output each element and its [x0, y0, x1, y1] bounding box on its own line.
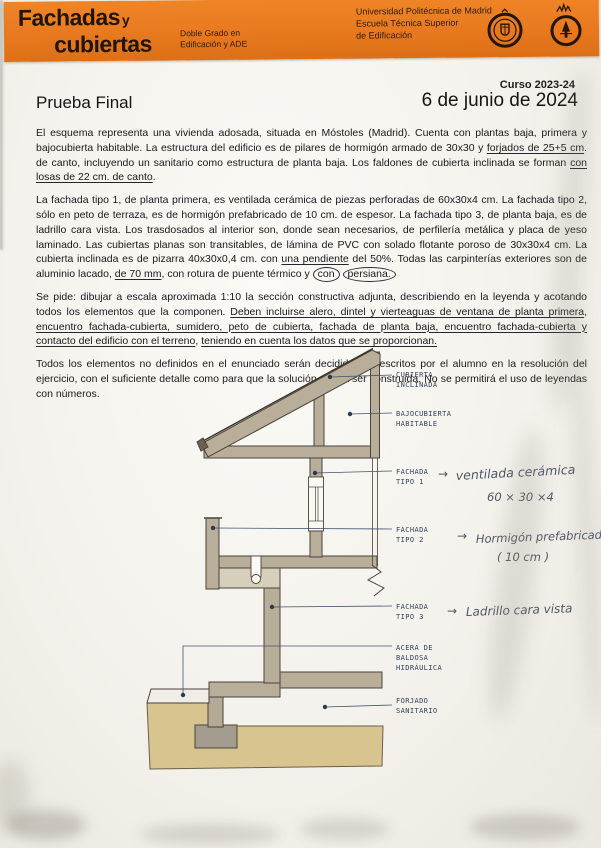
paragraph-building-description: El esquema representa una vivienda adosa… [36, 126, 587, 185]
ground-fill [147, 703, 383, 769]
title-word-1: Fachadas [18, 4, 120, 31]
label-acera-2: BALDOSA [396, 654, 429, 662]
scan-shadow-blot [300, 818, 390, 840]
paragraph-requirements: Se pide: dibujar a escala aproximada 1:1… [36, 290, 587, 349]
label-acera-3: HIDRÁULICA [396, 663, 443, 672]
text-run: con [313, 267, 340, 282]
label-fachada-tipo1-2: TIPO 1 [396, 478, 424, 486]
foundation-footing [195, 725, 237, 748]
annotation-hormigon-prefabricado: Hormigón prefabricado [476, 527, 601, 546]
text-run: persiana. [343, 267, 396, 282]
exam-title: Prueba Final [36, 93, 132, 113]
label-fachada-tipo2-2: TIPO 2 [396, 536, 424, 544]
window-frame [309, 477, 324, 531]
text-run: Deben incluirse alero, dintel y vierteag… [230, 306, 584, 318]
scan-shadow-blot [6, 810, 86, 840]
course-title-line1: Fachadasy [18, 4, 188, 33]
label-bajocubierta-2: HABITABLE [396, 420, 438, 428]
construction-section-drawing: CUBIERTA INCLINADA BAJOCUBIERTA HABITABL… [0, 348, 601, 808]
annotation-ladrillo-cara-vista: Ladrillo cara vista [466, 601, 573, 619]
text-run: una pendiente [281, 253, 348, 265]
upm-seal-icon [489, 9, 521, 46]
first-floor-slab [204, 446, 378, 458]
foundation-stem [208, 697, 223, 727]
text-run: de 70 mm [115, 268, 162, 280]
text-run: , [584, 306, 587, 318]
label-fachada-tipo1: FACHADA [396, 468, 429, 476]
text-run: teniendo en cuenta los datos que se prop… [201, 335, 437, 347]
text-run: . [153, 171, 156, 183]
university-line1: Universidad Politécnica de Madrid [356, 4, 492, 17]
program-line2: Edificación y ADE [180, 39, 247, 51]
inclined-roof-slab [201, 350, 380, 457]
scan-shadow-blot [470, 814, 580, 840]
label-cubierta-inclinada: CUBIERTA [396, 371, 433, 379]
label-cubierta-inclinada-2: INCLINADA [396, 381, 438, 389]
arrow-fachada1: → [438, 467, 448, 481]
exam-date: 6 de junio de 2024 [422, 90, 578, 112]
handwritten-annotations: → ventilada cerámica 60 × 30 ×4 → Hormig… [438, 462, 601, 619]
scan-shadow-blot [140, 824, 280, 844]
arrow-fachada2: → [457, 529, 467, 543]
university-line3: de Edificación [356, 28, 492, 41]
break-symbol [368, 565, 384, 596]
drawing-labels: CUBIERTA INCLINADA BAJOCUBIERTA HABITABL… [396, 371, 452, 715]
sanitary-slab-left [209, 682, 280, 697]
arrow-fachada3: → [447, 604, 457, 618]
seal-icons [475, 0, 594, 56]
label-forjado-sanitario: FORJADO [396, 697, 428, 705]
roof-slate-layer [203, 349, 373, 442]
label-acera: ACERA DE [396, 644, 433, 652]
drain-sumidero [251, 556, 261, 577]
terrace-slab [209, 556, 377, 568]
course-banner: Fachadasy cubiertas Doble Grado en Edifi… [4, 0, 600, 62]
label-bajocubierta: BAJOCUBIERTA [396, 410, 452, 418]
title-conjunction: y [122, 12, 129, 28]
facade-type1-upper [310, 458, 322, 479]
facade-type1-lower [310, 531, 322, 557]
annotation-10cm: ( 10 cm ) [497, 550, 549, 564]
university-name: Universidad Politécnica de Madrid Escuel… [356, 4, 492, 41]
terrace-edge-beam [209, 568, 280, 588]
program-name: Doble Grado en Edificación y ADE [180, 28, 247, 51]
school-seal-icon [552, 4, 580, 44]
annotation-ventilada-ceramica: ventilada cerámica [455, 462, 575, 483]
annotation-60x30x4: 60 × 30 ×4 [487, 490, 554, 504]
course-title-line2: cubiertas [54, 31, 188, 56]
text-run: forjados de 25+5 cm [487, 142, 584, 154]
drain-elbow [252, 575, 261, 584]
program-line1: Doble Grado en [180, 28, 247, 40]
paragraph-facade-types: La fachada tipo 1, de planta primera, es… [36, 193, 587, 282]
label-fachada-tipo3-2: TIPO 3 [396, 613, 424, 621]
label-fachada-tipo3: FACHADA [396, 603, 429, 611]
course-title: Fachadasy cubiertas [18, 4, 188, 57]
label-forjado-sanitario-2: SANITARIO [396, 707, 438, 715]
sanitary-slab-right [280, 672, 382, 688]
scanned-exam-page: Fachadasy cubiertas Doble Grado en Edifi… [0, 0, 601, 848]
text-run: , con rotura de puente térmico y [161, 268, 312, 280]
roof-support-post [314, 394, 324, 446]
label-fachada-tipo2: FACHADA [396, 526, 429, 534]
sidewalk [147, 689, 209, 703]
